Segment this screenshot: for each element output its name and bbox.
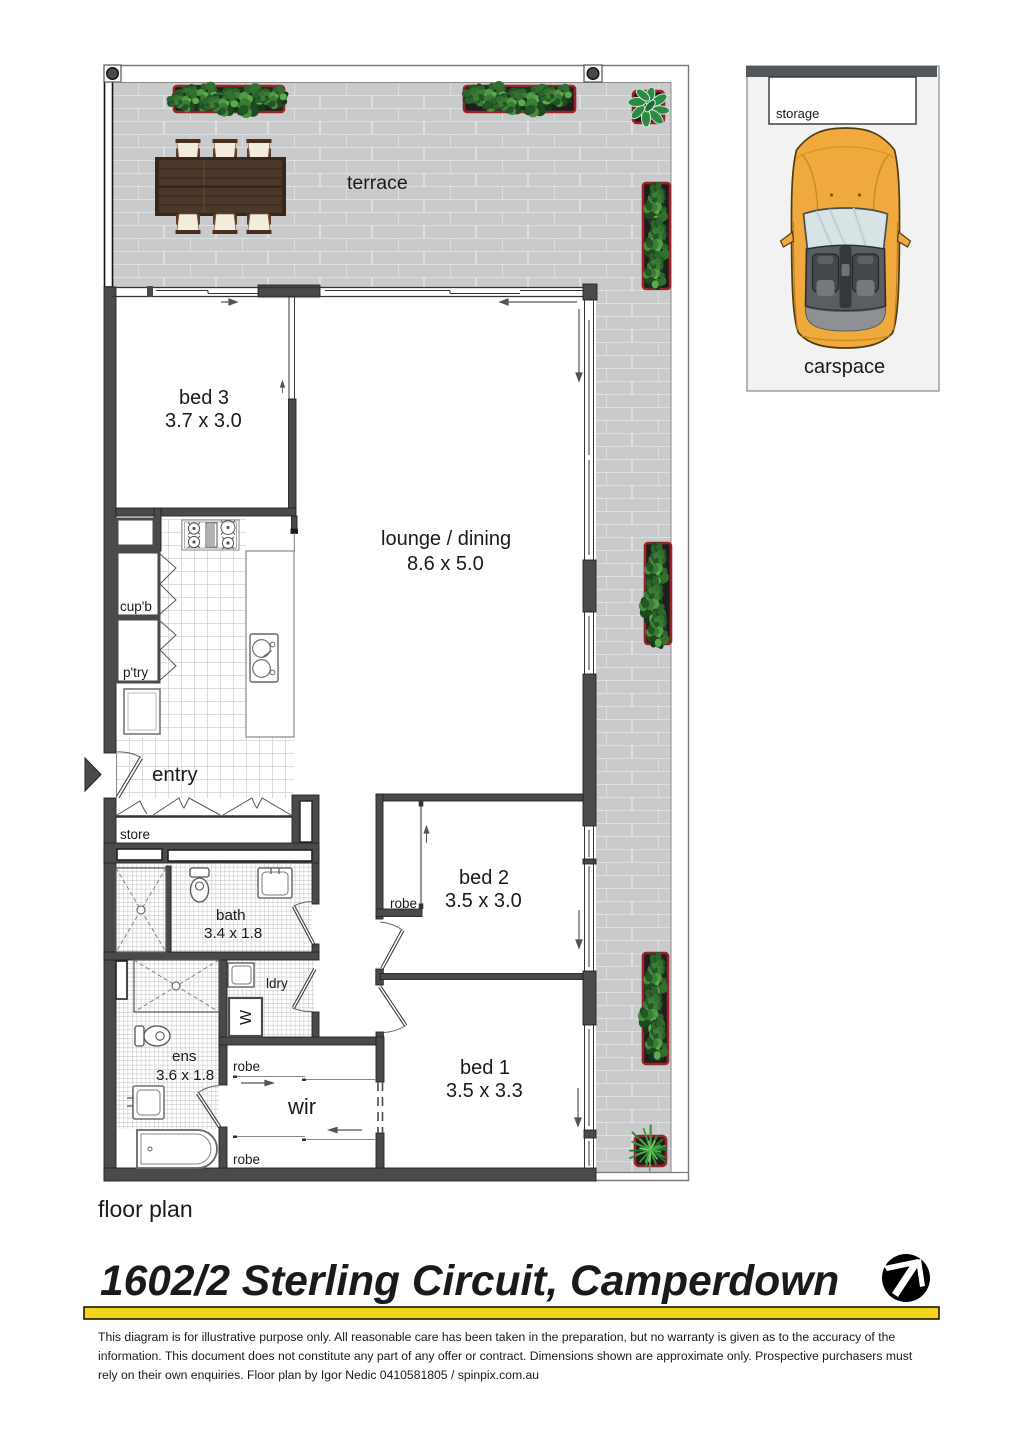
- svg-text:3.5 x 3.0: 3.5 x 3.0: [445, 890, 522, 912]
- svg-text:wir: wir: [287, 1094, 316, 1119]
- svg-text:lounge / dining: lounge / dining: [381, 528, 511, 550]
- svg-text:terrace: terrace: [347, 172, 408, 194]
- svg-text:rely on their own enquiries. F: rely on their own enquiries. Floor plan …: [98, 1368, 539, 1382]
- svg-text:8.6 x 5.0: 8.6 x 5.0: [407, 553, 484, 575]
- svg-text:1602/2 Sterling Circuit, Campe: 1602/2 Sterling Circuit, Camperdown: [100, 1258, 839, 1305]
- svg-text:cup'b: cup'b: [120, 599, 152, 614]
- svg-text:W: W: [238, 1009, 255, 1025]
- svg-text:robe: robe: [390, 896, 417, 911]
- svg-text:3.4 x 1.8: 3.4 x 1.8: [204, 925, 262, 942]
- svg-text:This diagram is for illustrati: This diagram is for illustrative purpose…: [98, 1330, 895, 1344]
- svg-text:3.5 x 3.3: 3.5 x 3.3: [446, 1080, 523, 1102]
- svg-text:ldry: ldry: [266, 976, 288, 991]
- svg-text:information. This document doe: information. This document does not cons…: [98, 1349, 913, 1363]
- svg-text:bed 3: bed 3: [179, 387, 229, 409]
- svg-text:carspace: carspace: [804, 356, 885, 378]
- svg-text:bath: bath: [216, 907, 246, 924]
- svg-text:3.6 x 1.8: 3.6 x 1.8: [156, 1067, 214, 1084]
- svg-text:3.7 x 3.0: 3.7 x 3.0: [165, 410, 242, 432]
- svg-text:entry: entry: [152, 763, 198, 786]
- svg-text:store: store: [120, 827, 150, 842]
- svg-text:storage: storage: [776, 106, 819, 121]
- svg-text:robe: robe: [233, 1152, 260, 1167]
- svg-text:robe: robe: [233, 1059, 260, 1074]
- svg-text:bed 2: bed 2: [459, 867, 509, 889]
- svg-text:floor plan: floor plan: [98, 1196, 193, 1222]
- svg-text:ens: ens: [172, 1048, 197, 1065]
- svg-text:bed 1: bed 1: [460, 1057, 510, 1079]
- svg-text:p'try: p'try: [123, 665, 148, 680]
